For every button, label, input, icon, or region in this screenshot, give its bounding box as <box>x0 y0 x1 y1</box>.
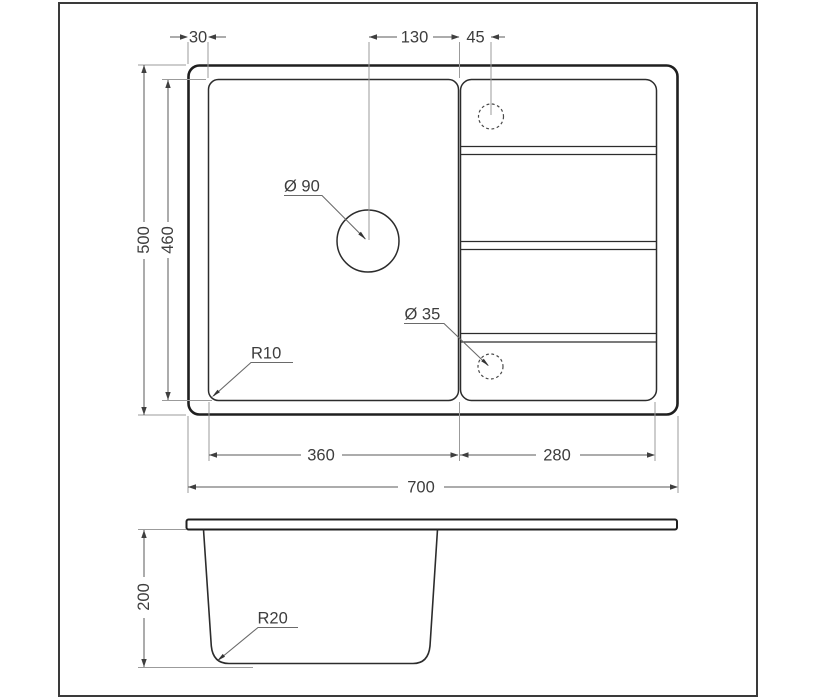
arrow-200-bottom <box>141 659 146 667</box>
dim-label-drainboard-width: 280 <box>543 447 571 465</box>
leader-section-corner-radius <box>219 628 299 661</box>
arrow-360-right <box>451 452 459 457</box>
tap-hole-bottom <box>478 354 503 379</box>
sink-technical-drawing: 30 130 45 500 460 360 280 700 200 Ø 90 Ø… <box>0 0 816 700</box>
arrow-360-left <box>209 452 217 457</box>
arrow-460-bottom <box>165 392 170 400</box>
dim-label-outer-depth: 500 <box>135 226 153 254</box>
dim-label-section-corner-radius: R20 <box>258 610 288 628</box>
arrow-700-left <box>188 484 196 489</box>
extension-lines <box>138 42 678 668</box>
dim-label-overall-width: 700 <box>407 479 435 497</box>
arrow-130-left <box>369 34 377 39</box>
arrow-130-right <box>452 34 460 39</box>
section-view <box>187 520 678 664</box>
dim-label-section-depth: 200 <box>135 583 153 611</box>
drainboard-panel <box>461 80 657 401</box>
leader-tap-hole-diameter <box>404 324 488 366</box>
sink-bowl-opening <box>209 80 459 401</box>
arrow-45-right <box>491 34 499 39</box>
section-rim-plate <box>187 520 678 530</box>
dim-label-tap-hole-diameter: Ø 35 <box>405 306 441 324</box>
leader-plan-corner-radius <box>214 363 294 397</box>
dim-label-plan-corner-radius: R10 <box>251 345 281 363</box>
dim-label-rim-offset: 30 <box>189 29 207 47</box>
dimension-lines <box>144 37 677 667</box>
arrow-30-right <box>208 34 216 39</box>
arrow-200-top <box>141 530 146 538</box>
leader-arrowheads <box>212 232 489 661</box>
arrow-500-top <box>141 65 146 73</box>
drawing-sheet: 30 130 45 500 460 360 280 700 200 Ø 90 Ø… <box>0 0 816 700</box>
leader-lines <box>214 196 489 661</box>
arrow-280-right <box>647 452 655 457</box>
arrow-700-right <box>670 484 678 489</box>
leader-drain-diameter <box>284 196 365 240</box>
arrow-460-top <box>165 80 170 88</box>
dim-label-drain-to-divider: 130 <box>401 29 429 47</box>
dim-label-bowl-width: 360 <box>307 447 335 465</box>
dim-label-drain-diameter: Ø 90 <box>284 178 320 196</box>
drainboard-groove-lines <box>461 147 657 343</box>
sheet-frame-border <box>59 3 757 696</box>
dim-label-bowl-depth: 460 <box>159 226 177 254</box>
dim-label-divider-to-hole: 45 <box>466 29 484 47</box>
arrow-500-bottom <box>141 407 146 415</box>
arrow-280-left <box>461 452 469 457</box>
dimension-arrowheads <box>141 34 678 667</box>
arrow-30-left <box>180 34 188 39</box>
